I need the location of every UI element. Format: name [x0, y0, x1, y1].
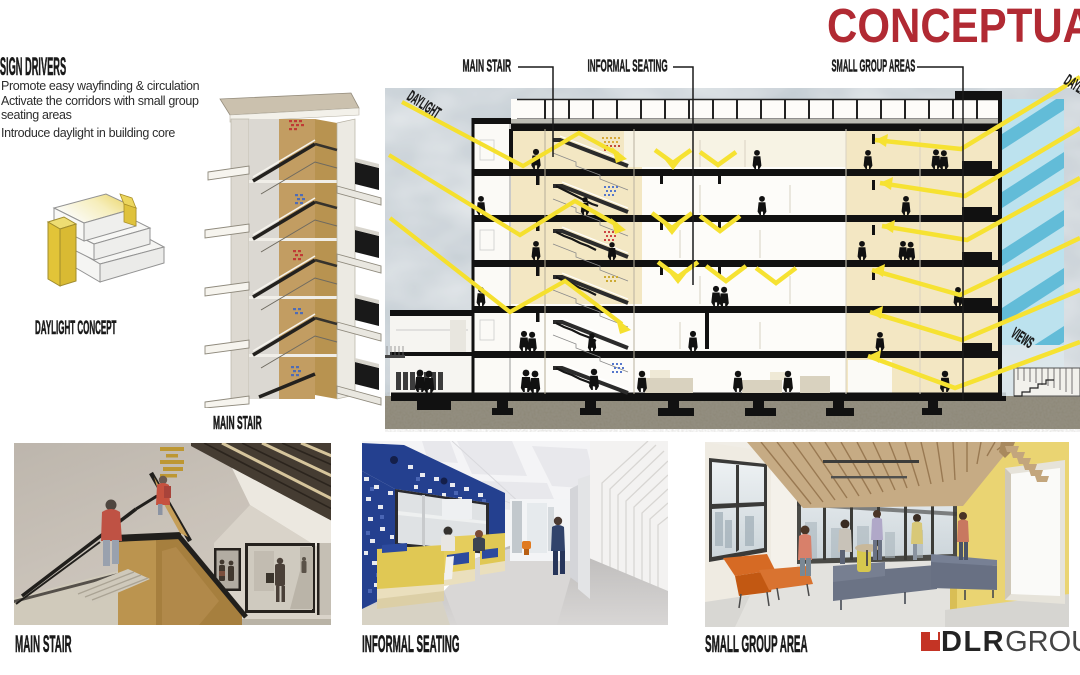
- svg-text:MAIN STAIR: MAIN STAIR: [463, 55, 512, 75]
- svg-text:INFORMAL SEATING: INFORMAL SEATING: [588, 55, 668, 75]
- svg-text:SMALL GROUP AREAS: SMALL GROUP AREAS: [832, 56, 916, 76]
